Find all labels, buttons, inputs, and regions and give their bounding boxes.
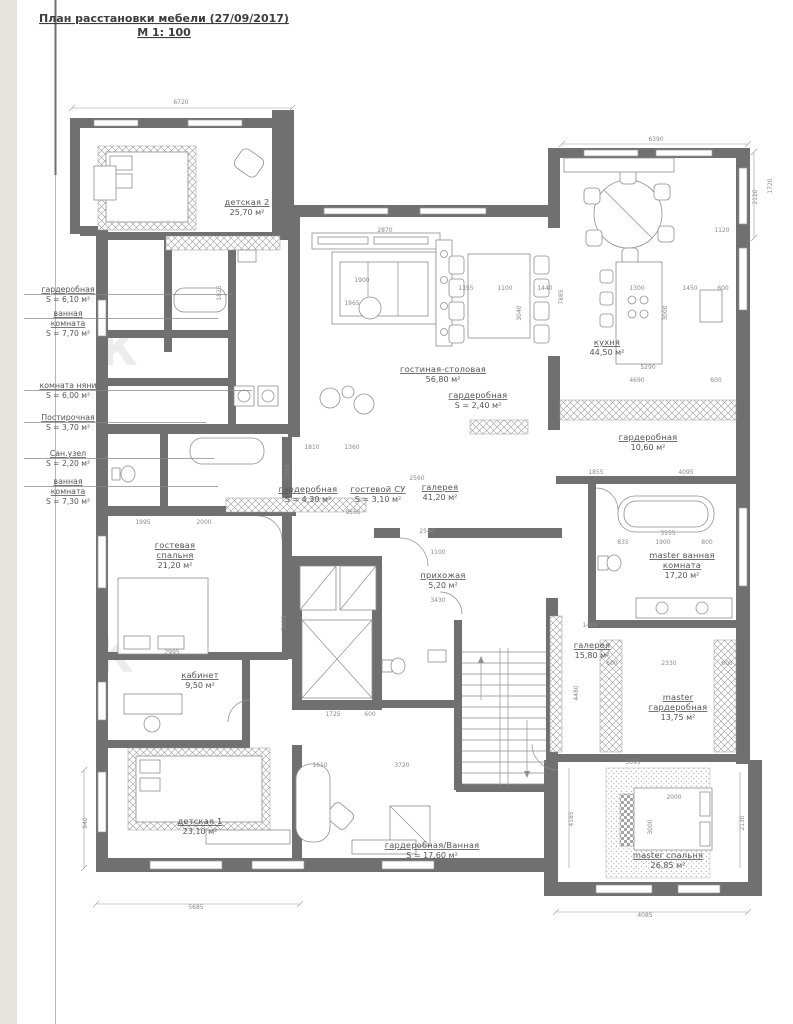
staircase bbox=[462, 648, 546, 788]
dimension-label: 4690 bbox=[629, 377, 644, 384]
dimension-label: 7885 bbox=[558, 289, 565, 304]
plan-title: План расстановки мебели (27/09/2017) bbox=[39, 12, 289, 25]
dimension-label: 1400 bbox=[582, 622, 597, 629]
dimension-label: 2540 bbox=[419, 528, 434, 535]
room-area-label: 44,50 м² bbox=[590, 348, 625, 357]
callout-label: гардеробная bbox=[41, 285, 94, 294]
dimension-label: 6720 bbox=[173, 99, 188, 106]
dimension-label: 1725 bbox=[325, 711, 340, 718]
bed-bench bbox=[620, 794, 636, 846]
room-label: master ванная bbox=[649, 550, 714, 560]
room-label: гостевая bbox=[155, 540, 196, 550]
dimension-label: 1855 bbox=[588, 469, 603, 476]
stair-arrow-up bbox=[478, 656, 484, 663]
dimension-label: 1995 bbox=[135, 519, 150, 526]
room-area-label: 5,20 м² bbox=[428, 581, 458, 590]
stair-arrow-down bbox=[524, 771, 530, 778]
room-label: кабинет bbox=[181, 670, 218, 680]
dimension-label: 1120 bbox=[714, 227, 729, 234]
dimension-label: 2995 bbox=[164, 649, 179, 656]
dimension-label: 9550 bbox=[345, 509, 360, 516]
dimension-label: 2330 bbox=[661, 660, 676, 667]
desk-child1 bbox=[206, 830, 290, 844]
tv-console bbox=[312, 233, 440, 249]
master-vanity bbox=[636, 598, 732, 618]
callout-label: Постирочная bbox=[41, 413, 95, 422]
dimension-label: 1450 bbox=[682, 285, 697, 292]
dimension-label: 1900 bbox=[655, 539, 670, 546]
dimension-label: 7033 bbox=[281, 615, 288, 630]
room-label: гардеробная bbox=[619, 432, 678, 442]
dimension-label: 5290 bbox=[640, 364, 655, 371]
dimension-label: 3430 bbox=[430, 597, 445, 604]
callout-labels: гардеробнаяS = 6,10 м²ваннаякомнатаS = 7… bbox=[24, 285, 252, 506]
dimension-label: 1720 bbox=[767, 178, 774, 193]
dimension-label: 800 bbox=[701, 539, 713, 546]
room-area-label: 56,80 м² bbox=[426, 375, 461, 384]
dimension-label: 600 bbox=[606, 660, 618, 667]
room-area-label: S = 2,40 м² bbox=[455, 401, 501, 410]
dimension-label: 1300 bbox=[629, 285, 644, 292]
title-block: План расстановки мебели (27/09/2017) М 1… bbox=[39, 12, 289, 39]
poufs bbox=[320, 386, 374, 414]
room-label: гардеробная/Ванная bbox=[385, 840, 480, 850]
room-area-label: 13,75 м² bbox=[661, 713, 696, 722]
room-label: комната bbox=[663, 560, 701, 570]
coffee-table bbox=[359, 297, 381, 319]
dimension-label: 835 bbox=[617, 539, 629, 546]
room-area-label: 9,50 м² bbox=[185, 681, 215, 690]
callout-label: комната bbox=[51, 319, 86, 328]
dimension-label: 600 bbox=[364, 711, 376, 718]
room-area-label: 17,20 м² bbox=[665, 571, 700, 580]
dimension-label: 1900 bbox=[354, 277, 369, 284]
room-label: гостевой СУ bbox=[351, 484, 406, 494]
master-toilet bbox=[598, 555, 621, 571]
callout-label: Сан.узел bbox=[50, 449, 86, 458]
kitchen-appliance bbox=[700, 290, 722, 322]
dimension-label: 6390 bbox=[648, 136, 663, 143]
room-label: спальня bbox=[156, 550, 193, 560]
room-area-label: 25,70 м² bbox=[230, 208, 265, 217]
dimension-label: 3000 bbox=[647, 819, 654, 834]
room-label: детская 2 bbox=[224, 197, 269, 207]
page-edge-artifact bbox=[0, 0, 56, 1024]
callout-label: ванная bbox=[53, 477, 82, 486]
dimension-label: 3720 bbox=[394, 762, 409, 769]
scanned-floor-plan-page: План расстановки мебели (27/09/2017) М 1… bbox=[0, 0, 793, 1024]
dimension-label: 3040 bbox=[516, 305, 523, 320]
room-label: master спальня bbox=[633, 850, 703, 860]
room-label: гардеробная bbox=[649, 702, 708, 712]
dimension-label: 2000 bbox=[666, 794, 681, 801]
dimension-label: 3555 bbox=[660, 530, 675, 537]
dimension-label: 600 bbox=[710, 377, 722, 384]
dimension-label: 1440 bbox=[537, 285, 552, 292]
dimension-label: 4185 bbox=[568, 811, 575, 826]
dimension-label: 1825 bbox=[216, 285, 223, 300]
room-area-label: 23,10 м² bbox=[183, 827, 218, 836]
dimension-label: 5695 bbox=[625, 759, 640, 766]
room-label: гардеробная bbox=[449, 390, 508, 400]
callout-area-label: S = 6,00 м² bbox=[46, 391, 90, 400]
room-label: гардеробная bbox=[279, 484, 338, 494]
bed-guest bbox=[118, 578, 208, 654]
kitchen-counter bbox=[564, 158, 674, 172]
room-label: кухня bbox=[594, 337, 620, 347]
dimension-label: 600 bbox=[717, 285, 729, 292]
master-bathtub bbox=[618, 496, 714, 532]
dimension-label: 5685 bbox=[188, 904, 203, 911]
room-area-label: S = 4,30 м² bbox=[285, 495, 331, 504]
dimension-label: 600 bbox=[721, 660, 733, 667]
callout-area-label: S = 3,70 м² bbox=[46, 423, 90, 432]
dimension-label: 1810 bbox=[304, 444, 319, 451]
room-area-label: 21,20 м² bbox=[158, 561, 193, 570]
office-desk bbox=[124, 694, 182, 714]
callout-label: комната няни bbox=[40, 381, 97, 390]
room-area-label: 15,80 м² bbox=[575, 651, 610, 660]
office-chair bbox=[144, 716, 160, 732]
room-area-label: S = 3,10 м² bbox=[355, 495, 401, 504]
dimension-label: 940 bbox=[82, 817, 89, 829]
dimension-label: 1095 bbox=[284, 464, 291, 479]
armchair-child2 bbox=[232, 147, 266, 180]
callout-area-label: S = 2,20 м² bbox=[46, 459, 90, 468]
desk-child2 bbox=[94, 166, 116, 200]
plan-scale: М 1: 100 bbox=[137, 26, 191, 39]
dimension-label: 4085 bbox=[637, 912, 652, 919]
room-area-label: 10,60 м² bbox=[631, 443, 666, 452]
dimension-label: 1610 bbox=[312, 762, 327, 769]
floor-plan-canvas: План расстановки мебели (27/09/2017) М 1… bbox=[0, 0, 793, 1024]
elevator-core bbox=[300, 566, 376, 698]
dimension-label: 2560 bbox=[409, 475, 424, 482]
dimension-label: 2130 bbox=[739, 815, 746, 830]
dining-table-chairs bbox=[449, 254, 549, 343]
dimension-label: 1355 bbox=[458, 285, 473, 292]
room-label: галерея bbox=[574, 640, 611, 650]
room-label: гостиная-столовая bbox=[400, 364, 486, 374]
dimension-label: 2120 bbox=[752, 189, 759, 204]
dimension-label: 1965 bbox=[344, 300, 359, 307]
dimension-label: 1360 bbox=[344, 444, 359, 451]
room-label: master bbox=[663, 692, 694, 702]
bed-child1 bbox=[136, 756, 262, 822]
room-area-label: S = 17,60 м² bbox=[406, 851, 458, 860]
dimension-label: 4480 bbox=[573, 685, 580, 700]
callout-area-label: S = 6,10 м² bbox=[46, 295, 90, 304]
room-label: галерея bbox=[422, 482, 459, 492]
dimension-label: 1100 bbox=[497, 285, 512, 292]
room-label: детская 1 bbox=[177, 816, 222, 826]
sofa bbox=[332, 252, 436, 324]
dimension-label: 4095 bbox=[678, 469, 693, 476]
callout-area-label: S = 7,30 м² bbox=[46, 497, 90, 506]
dimension-label: 2870 bbox=[377, 227, 392, 234]
dimension-label: 3000 bbox=[662, 305, 669, 320]
room-area-label: 26,85 м² bbox=[651, 861, 686, 870]
callout-label: комната bbox=[51, 487, 86, 496]
room-area-label: 41,20 м² bbox=[423, 493, 458, 502]
room-label: прихожая bbox=[420, 570, 465, 580]
dimension-label: 1100 bbox=[430, 549, 445, 556]
callout-area-label: S = 7,70 м² bbox=[46, 329, 90, 338]
bed-child2 bbox=[106, 152, 188, 222]
dimension-label: 2000 bbox=[196, 519, 211, 526]
callout-label: ванная bbox=[53, 309, 82, 318]
kitchen-round-table bbox=[584, 168, 674, 264]
